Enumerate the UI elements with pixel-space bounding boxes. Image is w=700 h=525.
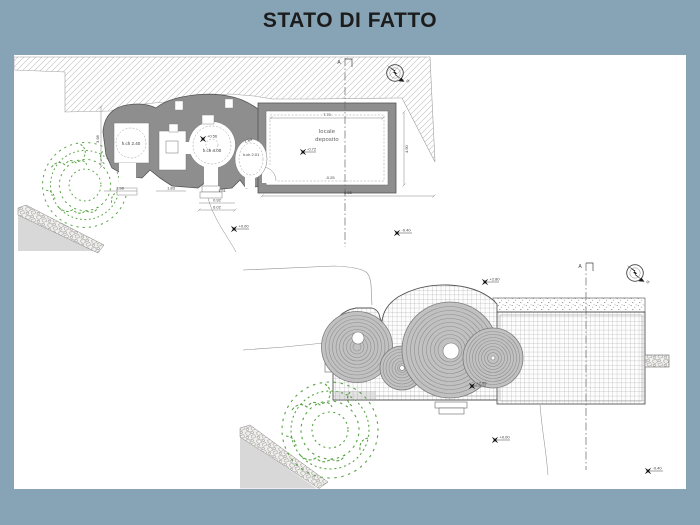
svg-text:1.98: 1.98 [116,186,125,191]
elevation-marker: +0.00 [231,224,250,233]
dim-4-90: 4.90 [403,111,410,187]
elevation-marker: -0.40 [394,228,412,237]
section-label: A [578,264,582,270]
dim-6-02: 6.02 [198,205,237,212]
slide: { "title": "STATO DI FATTO", "colors": {… [0,0,700,525]
stone-wall [240,425,328,489]
svg-text:+0.56: +0.56 [207,134,218,139]
room-left [114,123,149,195]
deposito-label-1: locale [319,129,335,135]
svg-text:+0.00: +0.00 [500,435,511,440]
svg-text:+2.85: +2.85 [477,381,488,386]
svg-text:-0.40: -0.40 [653,466,663,471]
svg-text:-0.40: -0.40 [402,228,412,233]
dim-left-vertical: 3.98 [95,106,103,169]
roof-spout [645,355,669,367]
elevation-marker: -0.40 [645,466,663,475]
terrace-steps [435,402,467,414]
svg-text:3.98: 3.98 [95,134,100,143]
roof-plan-drawing: A N +2.80 +2.85 +0.00 -0.40 [14,255,686,489]
svg-text:-0.72: -0.72 [307,147,317,152]
elevation-marker: +0.00 [492,435,511,444]
north-arrow-icon: N [627,265,651,285]
room-right-label: h.ch 2.01 [243,152,260,157]
dim-1-51: 1.51 [218,188,227,193]
room-central-label: h.ch 4.00 [203,148,222,153]
dim-inner-bottom: -0.25 [325,175,335,180]
wall-niche [225,99,233,108]
north-label: N [645,279,651,285]
svg-text:+2.80: +2.80 [490,277,501,282]
svg-text:1.83: 1.83 [167,186,176,191]
wall-niche [175,101,183,110]
dim-0-92: 0.92 [199,198,235,204]
svg-text:+0.00: +0.00 [239,224,250,229]
garden-path [540,405,548,475]
elevation-marker: +2.80 [482,277,501,286]
floor-plan-drawing: A N h.ch 2.40 +0.56 h.ch 4.00 1.84 h.ch … [14,55,686,255]
page-title: STATO DI FATTO [0,9,700,33]
dome-right [463,328,523,388]
deposito-label-2: deposito [315,137,339,143]
svg-text:6.65: 6.65 [344,190,353,195]
svg-text:7.70: 7.70 [323,112,332,117]
svg-text:0.92: 0.92 [213,198,222,203]
svg-text:6.02: 6.02 [213,205,222,210]
drawing-sheet: A N h.ch 2.40 +0.56 h.ch 4.00 1.84 h.ch … [14,55,686,489]
room-left-label: h.ch 2.40 [122,141,141,146]
svg-text:4.90: 4.90 [404,144,409,153]
room-vestibule [159,124,186,170]
